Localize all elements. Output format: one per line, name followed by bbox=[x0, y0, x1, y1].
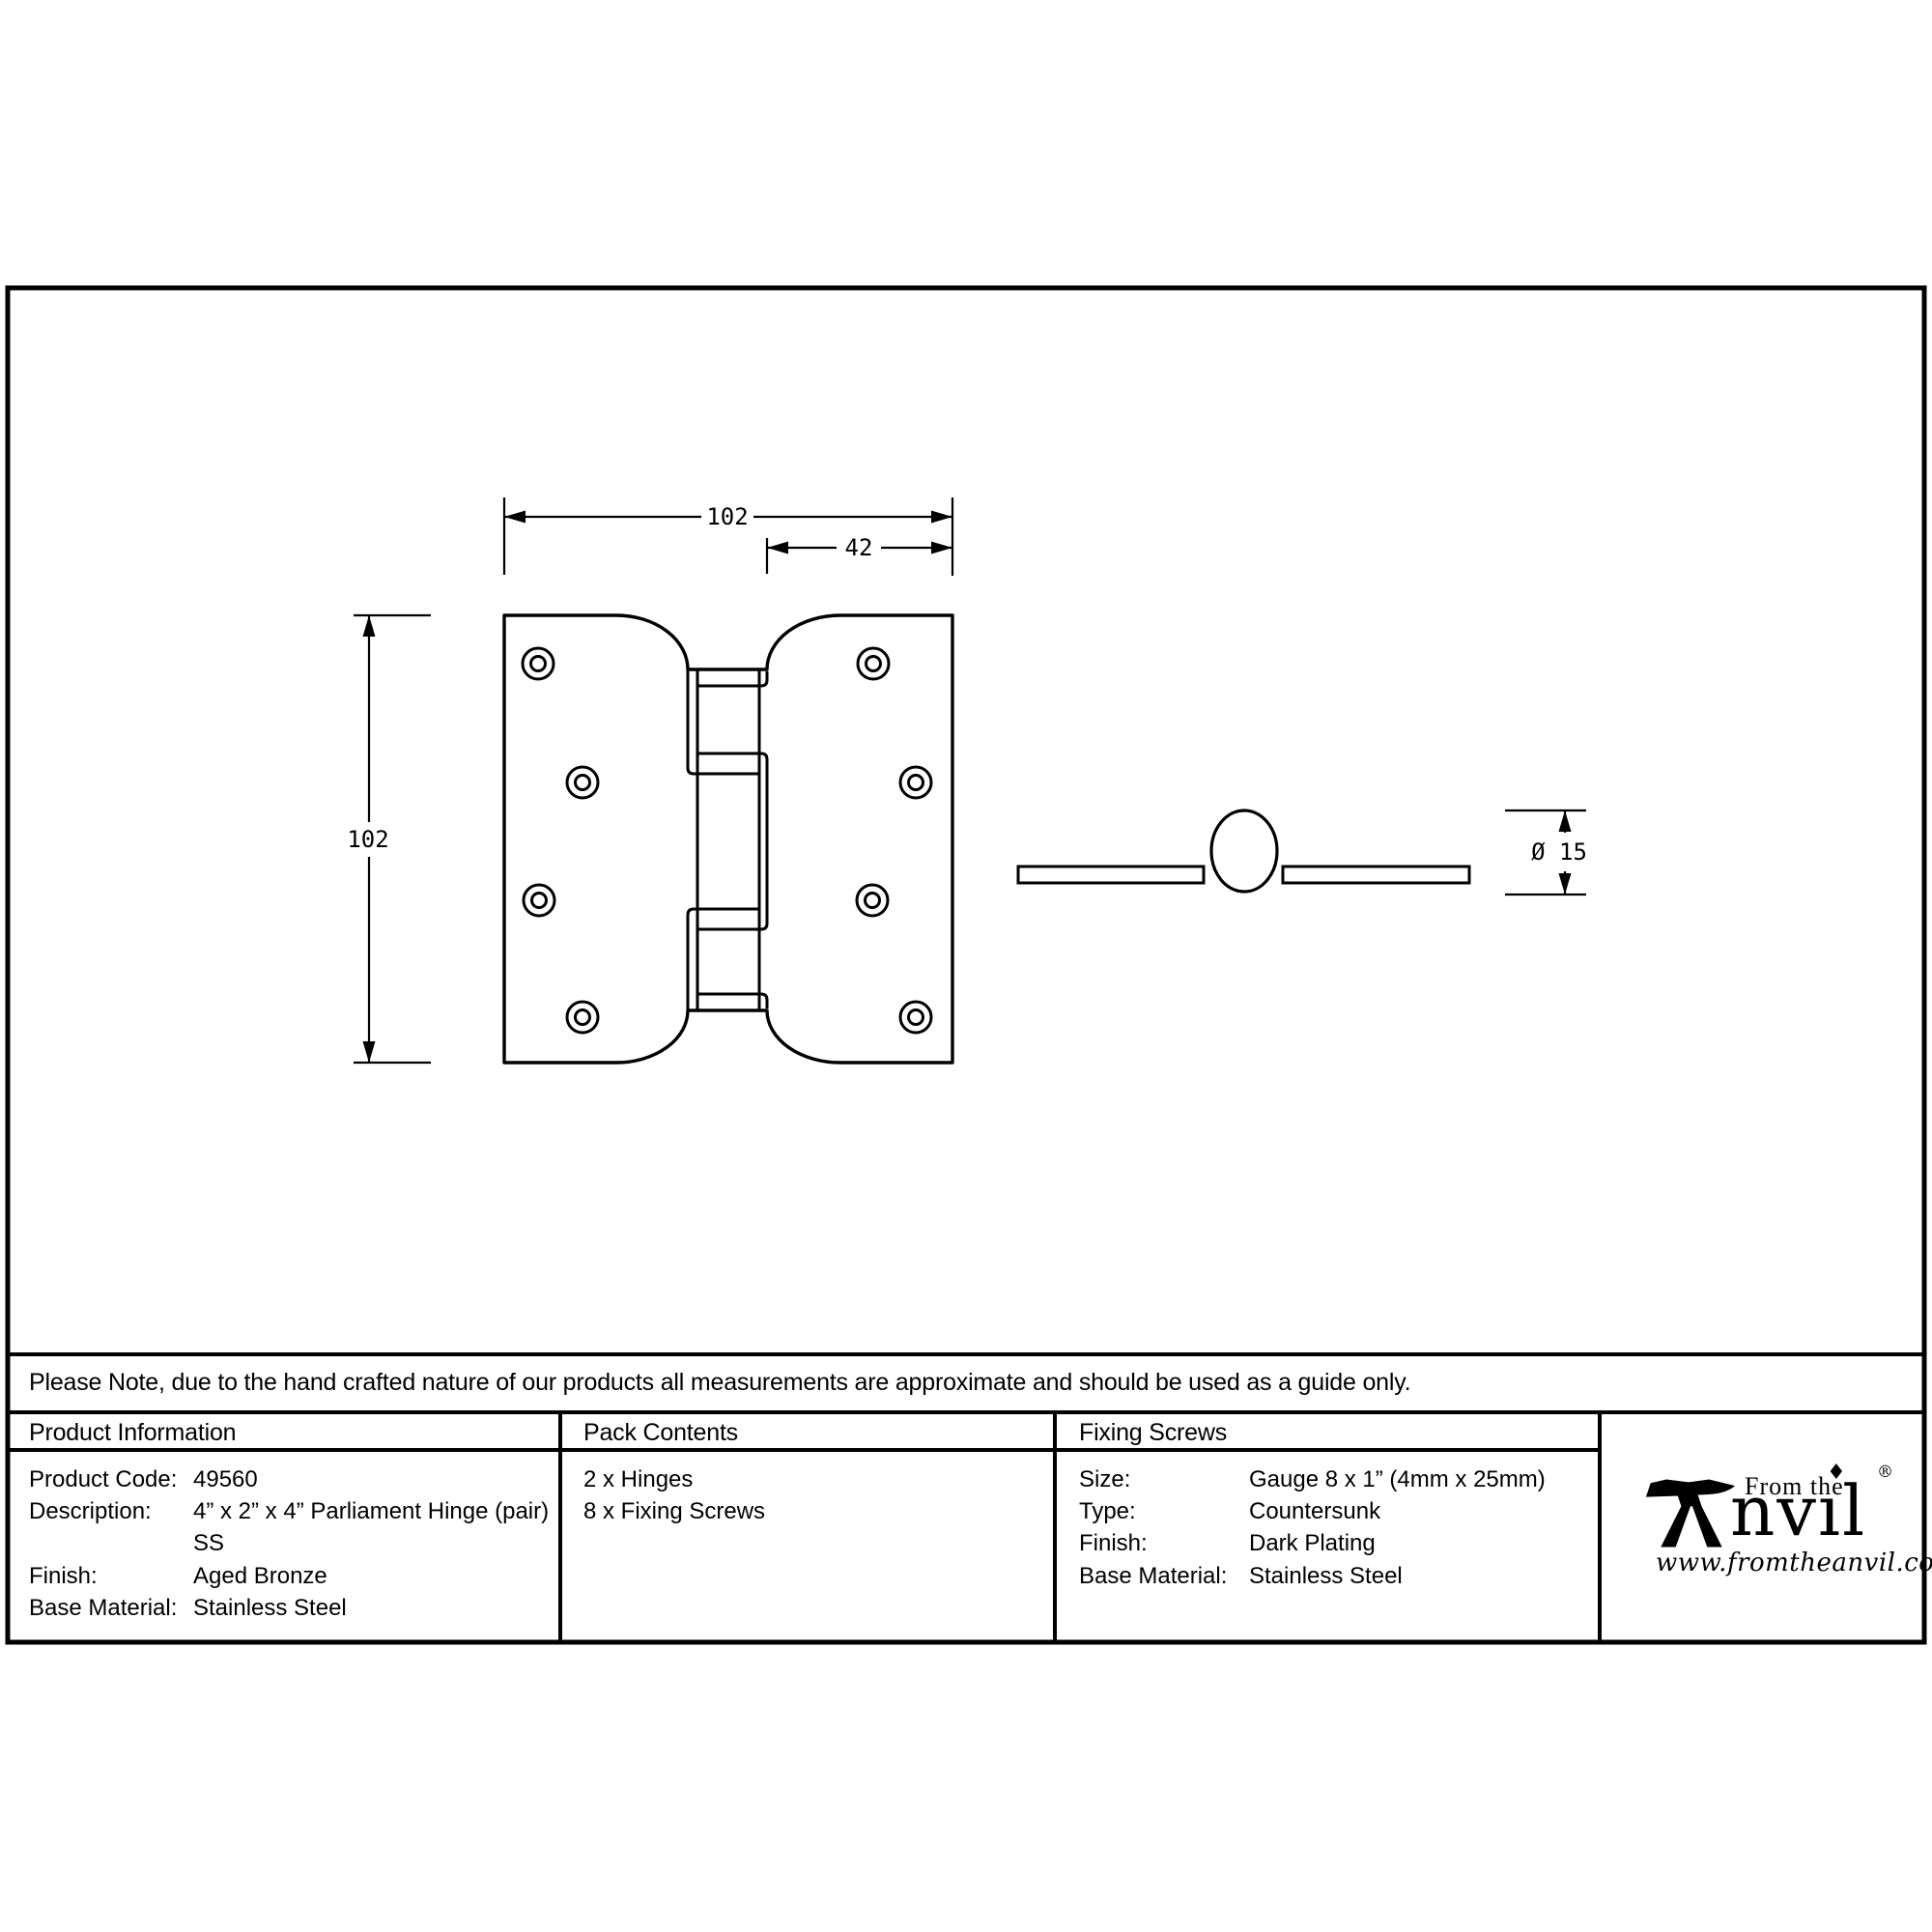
field-value: 49560 bbox=[193, 1466, 258, 1493]
screw-hole bbox=[567, 1002, 598, 1033]
table-row: Finish: Aged Bronze bbox=[29, 1560, 551, 1592]
field-label: Size: bbox=[1079, 1466, 1249, 1493]
screw-hole bbox=[900, 1002, 931, 1033]
technical-drawing-canvas: 102 42 102 bbox=[0, 0, 1932, 1932]
pack-item: 2 x Hinges bbox=[583, 1466, 693, 1493]
field-value: 4” x 2” x 4” Parliament Hinge (pair) bbox=[193, 1498, 549, 1525]
brand-logo: From the ® nvıl ♦ www.fromtheanvil.co.uk bbox=[1600, 1412, 1924, 1642]
screw-hole bbox=[524, 885, 554, 916]
logo-brand-text: nvıl ♦ bbox=[1730, 1476, 1866, 1546]
diamond-tittle-icon: ♦ bbox=[1827, 1463, 1848, 1484]
hinge-side-view bbox=[1018, 810, 1469, 892]
logo-website-url: www.fromtheanvil.co.uk bbox=[1656, 1548, 1932, 1577]
side-view-left-leaf bbox=[1018, 867, 1204, 883]
dimension-leaf-offset: 42 bbox=[767, 534, 952, 574]
field-label: Description: bbox=[29, 1498, 193, 1525]
registered-trademark-symbol: ® bbox=[1877, 1463, 1893, 1482]
dimension-offset-label: 42 bbox=[845, 534, 873, 561]
dimension-width-label: 102 bbox=[706, 503, 748, 530]
pack-item: 8 x Fixing Screws bbox=[583, 1498, 765, 1525]
table-row: Base Material: Stainless Steel bbox=[29, 1593, 551, 1625]
field-label: Base Material: bbox=[29, 1595, 193, 1622]
table-row: Type: Countersunk bbox=[1079, 1495, 1591, 1527]
product-information-cell: Product Code: 49560 Description: 4” x 2”… bbox=[29, 1463, 551, 1625]
hinge-front-view bbox=[504, 615, 952, 1063]
field-label: Finish: bbox=[1079, 1530, 1249, 1557]
screw-hole bbox=[523, 648, 554, 679]
field-label: Type: bbox=[1079, 1498, 1249, 1525]
measurement-disclaimer-note: Please Note, due to the hand crafted nat… bbox=[29, 1369, 1410, 1397]
field-value: Gauge 8 x 1” (4mm x 25mm) bbox=[1249, 1466, 1546, 1493]
hinge-plate-outline bbox=[504, 615, 952, 1063]
field-value: Dark Plating bbox=[1249, 1530, 1376, 1557]
screw-hole bbox=[858, 648, 889, 679]
column-header-fixing-screws: Fixing Screws bbox=[1079, 1419, 1227, 1447]
table-row: 2 x Hinges bbox=[583, 1463, 1037, 1495]
side-view-knuckle-barrel bbox=[1211, 810, 1277, 892]
field-value: Countersunk bbox=[1249, 1498, 1380, 1525]
table-row: 8 x Fixing Screws bbox=[583, 1495, 1037, 1527]
screw-hole bbox=[567, 767, 598, 798]
table-row: Finish: Dark Plating bbox=[1079, 1528, 1591, 1560]
dimension-overall-width: 102 bbox=[504, 497, 952, 576]
field-value: Aged Bronze bbox=[193, 1563, 327, 1590]
side-view-right-leaf bbox=[1283, 867, 1469, 883]
table-row: Product Code: 49560 bbox=[29, 1463, 551, 1495]
field-value: Stainless Steel bbox=[193, 1595, 347, 1622]
column-header-pack-contents: Pack Contents bbox=[583, 1419, 738, 1447]
drawing-sheet: 102 42 102 bbox=[0, 0, 1932, 1932]
fixing-screws-cell: Size: Gauge 8 x 1” (4mm x 25mm) Type: Co… bbox=[1079, 1463, 1591, 1593]
dimension-height-label: 102 bbox=[347, 826, 388, 853]
dimension-height: 102 bbox=[347, 615, 431, 1063]
screw-hole bbox=[900, 767, 931, 798]
anvil-icon bbox=[1644, 1474, 1737, 1551]
dimension-barrel-diameter: Ø 15 bbox=[1505, 810, 1587, 895]
field-label: Base Material: bbox=[1079, 1563, 1249, 1590]
column-header-product-information: Product Information bbox=[29, 1419, 236, 1447]
field-label: Product Code: bbox=[29, 1466, 193, 1493]
table-row: SS bbox=[29, 1528, 551, 1560]
table-row: Description: 4” x 2” x 4” Parliament Hin… bbox=[29, 1495, 551, 1527]
field-label: Finish: bbox=[29, 1563, 193, 1590]
pack-contents-cell: 2 x Hinges 8 x Fixing Screws bbox=[583, 1463, 1037, 1528]
dimension-diameter-label: Ø 15 bbox=[1531, 838, 1587, 866]
table-row: Size: Gauge 8 x 1” (4mm x 25mm) bbox=[1079, 1463, 1591, 1495]
field-value: Stainless Steel bbox=[1249, 1563, 1403, 1590]
table-row: Base Material: Stainless Steel bbox=[1079, 1560, 1591, 1592]
screw-hole bbox=[857, 885, 888, 916]
field-value: SS bbox=[193, 1530, 224, 1557]
